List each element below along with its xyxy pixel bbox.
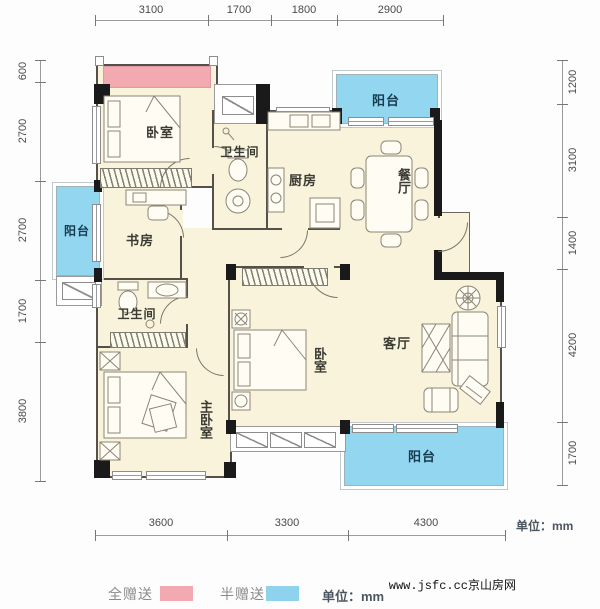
legend-full-gift-label: 全赠送 [108,584,153,604]
dim-bottom-2: 3300 [255,517,319,529]
dim-left-1: 600 [17,41,31,101]
unit-label-dims: 单位：mm [516,517,573,534]
floorplan-canvas: 卧室 卫生间 厨房 餐厅 书房 卫生间 主卧室 卧室 客厅 阳台 阳台 阳台 3… [0,0,600,609]
dim-right-4: 4200 [567,315,581,375]
dim-left-5: 3800 [17,381,31,441]
label-study: 书房 [112,230,168,249]
label-bedroom1: 卧室 [130,122,190,141]
dim-top-2: 1700 [207,4,271,16]
label-kitchen: 厨房 [275,170,331,189]
dim-top-3: 1800 [272,4,336,16]
dim-bottom-1: 3600 [129,517,193,529]
label-bathroom2: 卫生间 [109,305,165,322]
label-balcony-top: 阳台 [356,90,416,109]
dim-left-2: 2700 [17,101,31,161]
bed-master [100,352,186,460]
label-balcony-bottom: 阳台 [392,446,452,465]
legend-half-gift-swatch [266,586,299,601]
dim-top-4: 2900 [358,4,422,16]
desk-study [126,190,186,220]
dim-left-4: 1700 [17,281,31,341]
label-master-bedroom: 主卧室 [196,388,215,450]
dim-right-1: 1200 [567,52,581,112]
label-bathroom1: 卫生间 [212,143,268,160]
legend-half-gift-label: 半赠送 [220,584,265,604]
label-balcony-left: 阳台 [57,222,97,239]
watermark: www.jsfc.cc京山房网 [386,576,516,593]
bed-bedroom2 [232,310,306,410]
fixtures-bathroom1 [223,128,250,213]
label-living: 客厅 [369,333,425,352]
dim-top-1: 3100 [119,4,183,16]
label-bedroom2: 卧室 [310,338,329,382]
legend-full-gift-swatch [160,586,193,601]
dining-set [351,141,428,247]
dim-right-3: 1400 [567,213,581,273]
dim-right-2: 3100 [567,130,581,190]
unit-label-legend: 单位：mm [322,586,384,605]
label-dining: 餐厅 [394,158,413,204]
dim-left-3: 2700 [17,200,31,260]
dim-bottom-3: 4300 [394,517,458,529]
living-set [422,286,490,412]
dim-right-5: 1700 [567,423,581,483]
